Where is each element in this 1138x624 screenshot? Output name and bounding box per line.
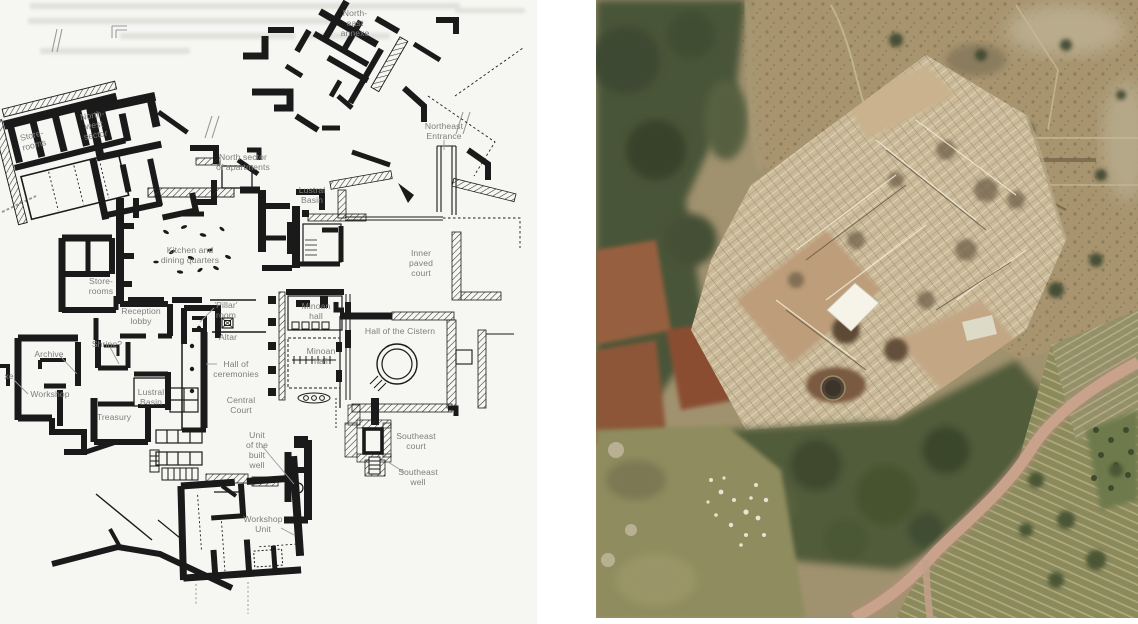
northeast-annexe-label: North-eastannexe <box>341 8 370 38</box>
northeast-entrance-label: NortheastEntrance <box>425 121 463 141</box>
lustral-basin-west-label: LustralBasin <box>138 387 165 407</box>
central-court-label: CentralCourt <box>227 395 255 415</box>
pillar-room-label: 'Pillar'room <box>214 300 237 320</box>
aerial-photo-image <box>596 0 1138 618</box>
two-panel-figure: North-eastannexeNortheastEntranceStore-r… <box>0 0 1138 624</box>
hall-of-the-cistern-label: Hall of the Cistern <box>365 326 435 336</box>
workshop-label: Workshop <box>30 389 69 399</box>
annexe-edge-fragment-label: xe <box>4 371 13 381</box>
kitchen-dining-quarters-label: Kitchen anddining quarters <box>161 245 219 265</box>
unit-of-the-built-well-label: Unitof thebuiltwell <box>246 430 268 471</box>
southeast-court-label: Southeastcourt <box>396 431 436 451</box>
southeast-well-label: Southeastwell <box>398 467 438 487</box>
plan-labels-layer: North-eastannexeNortheastEntranceStore-r… <box>0 0 537 624</box>
storerooms-northwest-label: Store-rooms <box>19 127 48 153</box>
northwest-sector-label: North-westsector <box>79 108 108 142</box>
archive-label: Archive <box>34 349 63 359</box>
shrine-label: Shrine? <box>92 339 122 349</box>
workshop-unit-label: WorkshopUnit <box>243 514 282 534</box>
minoan-hall-lower-label: Minoanhall <box>307 346 336 366</box>
palace-floor-plan-panel: North-eastannexeNortheastEntranceStore-r… <box>0 0 537 624</box>
cistern-circle <box>821 376 845 400</box>
treasury-label: Treasury <box>97 412 131 422</box>
north-sector-of-apartments-label: North sectorof apartments <box>216 152 270 172</box>
hall-of-ceremonies-label: Hall ofceremonies <box>213 359 258 379</box>
inner-paved-court-label: Innerpavedcourt <box>409 248 433 278</box>
altar-label: Altar <box>219 332 237 342</box>
reception-lobby-label: Receptionlobby <box>121 306 161 326</box>
lustral-basin-north-label: LustralBasin <box>299 185 326 205</box>
aerial-photo-panel <box>596 0 1138 618</box>
minoan-hall-upper-label: Minoanhall <box>302 301 331 321</box>
storerooms-west-label: Store-rooms <box>89 276 113 296</box>
